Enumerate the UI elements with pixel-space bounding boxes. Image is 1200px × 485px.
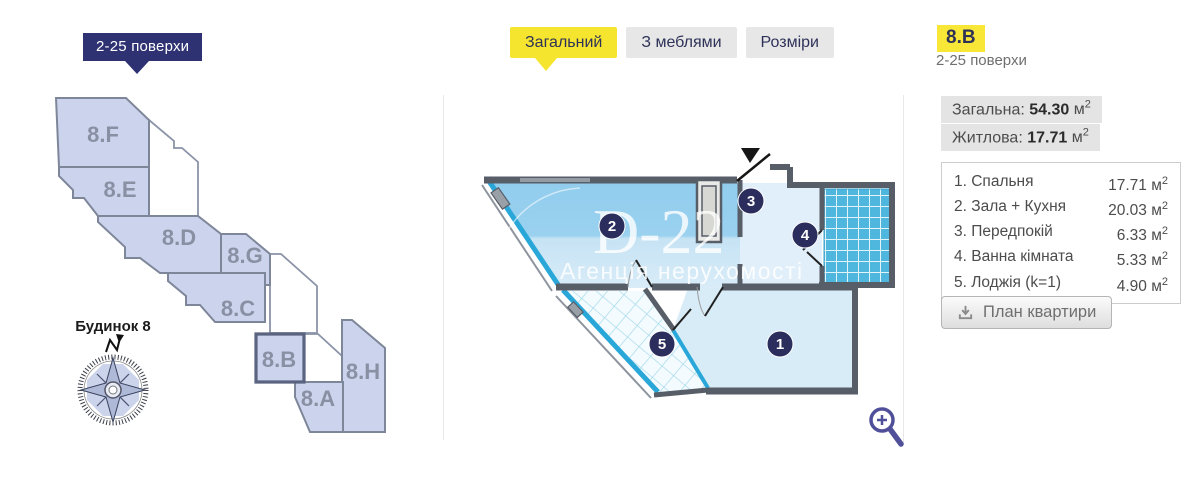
apartment-floors: 2-25 поверхи [936,52,1027,69]
section-label: 8.G [227,243,262,268]
apartment-page: 2-25 поверхи 8.F 8.E 8.D 8.G 8.C 8.B 8.H… [0,0,1200,485]
living-area-box: Житлова: 17.71 м2 [941,124,1100,151]
watermark-subtitle: Агенція нерухомості [560,258,804,284]
building-section-8d[interactable] [98,216,221,273]
room-4-bathroom [824,189,892,285]
magnifier-plus-icon[interactable] [866,404,906,452]
room-list-item: 3. Передпокій6.33 м2 [954,221,1168,246]
room-marker-1: 1 [776,336,784,353]
room-marker-5: 5 [658,336,666,353]
apartment-code-badge: 8.B [937,25,985,52]
entrance-arrow-icon [741,148,760,163]
building-section-unlabeled [304,334,342,382]
divider-right [903,95,904,445]
room-marker-4: 4 [801,227,810,244]
room-marker-2: 2 [608,218,616,235]
room-marker-3: 3 [747,193,755,210]
room-list-item: 1. Спальня17.71 м2 [954,171,1168,196]
section-label: 8.A [301,386,335,411]
living-area-value: 17.71 [1027,129,1067,146]
tab-dimensions[interactable]: Розміри [746,27,834,58]
floor-plan[interactable]: D-22 Агенція нерухомості 1 2 3 4 5 [440,140,900,470]
building-section-unlabeled [270,254,317,333]
download-tray-icon [957,304,974,321]
section-label: 8.C [221,296,255,321]
tab-furniture[interactable]: З меблями [626,27,736,58]
section-label-selected: 8.B [262,347,296,372]
room-list: 1. Спальня17.71 м22. Зала + Кухня20.03 м… [941,162,1181,304]
total-area-box: Загальна: 54.30 м2 [941,96,1102,123]
living-area-label: Житлова: [952,129,1023,146]
section-label: 8.F [87,122,119,147]
download-plan-button[interactable]: План квартири [941,296,1112,329]
room-list-item: 4. Ванна кімната5.33 м2 [954,246,1168,271]
compass-rose-icon: Будинок 8 [75,318,151,423]
north-arrow-icon [106,334,124,352]
building-section-unlabeled [149,120,198,216]
room-list-item: 5. Лоджія (k=1)4.90 м2 [954,272,1168,297]
section-label: 8.D [162,225,196,250]
building-diagram: 8.F 8.E 8.D 8.G 8.C 8.B 8.H 8.A Будинок … [0,0,440,485]
section-label: 8.H [346,359,380,384]
download-plan-label: План квартири [983,303,1096,322]
section-label: 8.E [103,177,136,202]
room-list-item: 2. Зала + Кухня20.03 м2 [954,196,1168,221]
total-area-label: Загальна: [952,101,1025,118]
plan-view-tabs: Загальний З меблями Розміри [510,27,834,58]
tab-general[interactable]: Загальний [510,27,617,58]
total-area-value: 54.30 [1029,101,1069,118]
building-title: Будинок 8 [75,318,151,335]
